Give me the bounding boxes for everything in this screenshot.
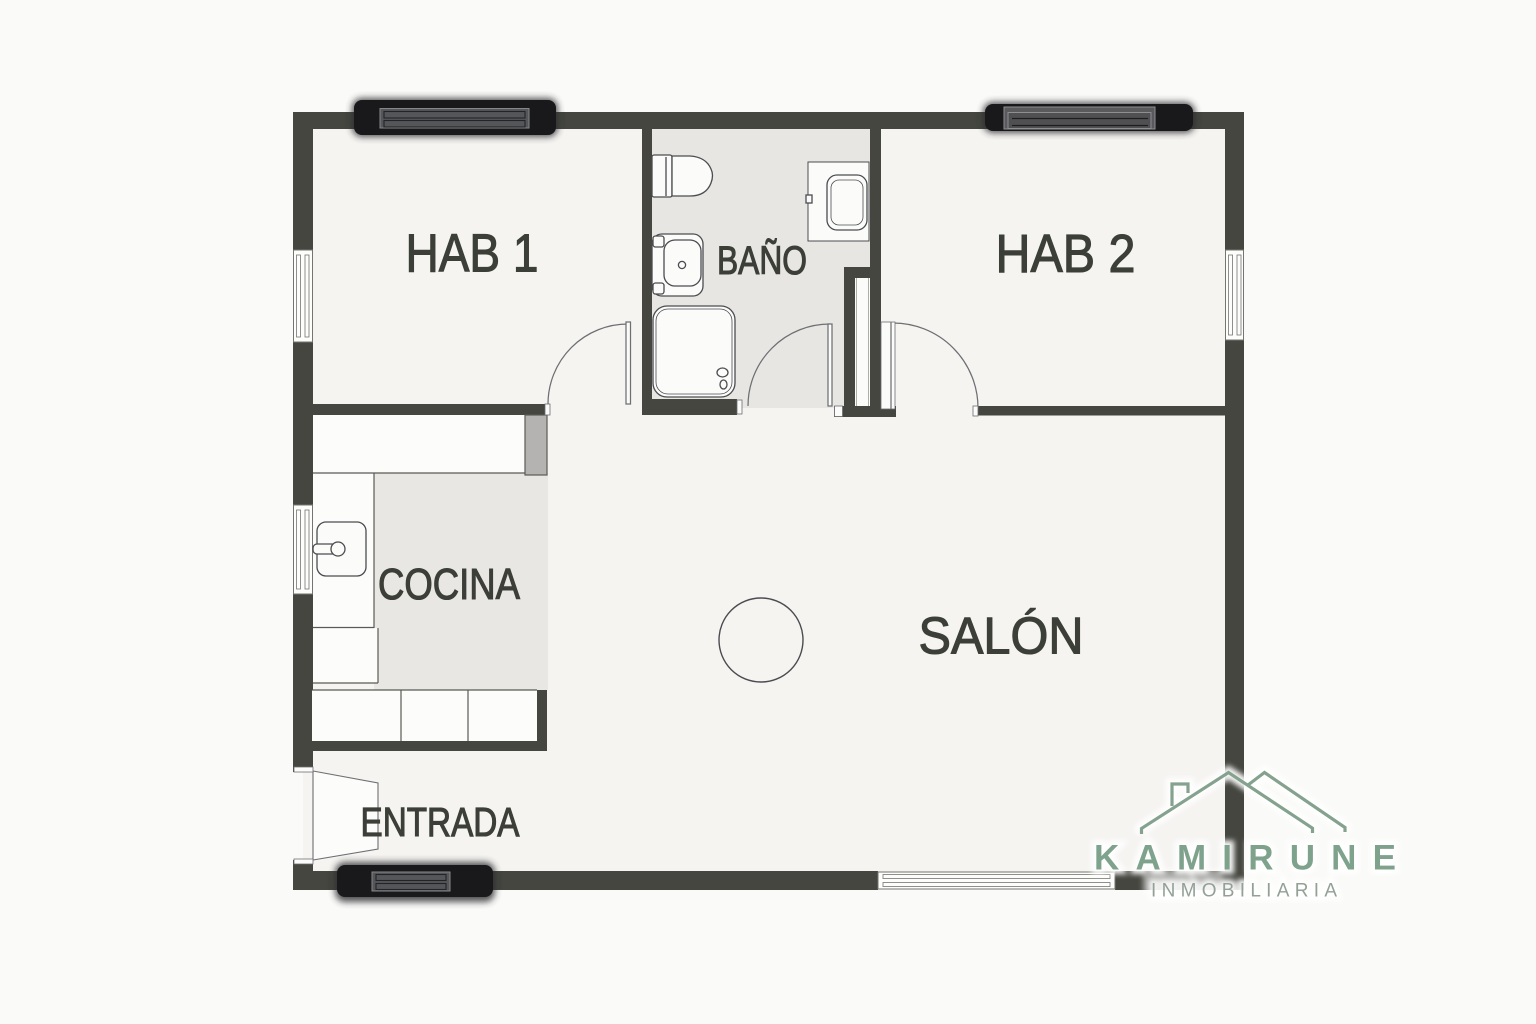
svg-text:ENTRADA: ENTRADA: [361, 799, 521, 845]
svg-text:HAB 1: HAB 1: [406, 224, 539, 284]
svg-text:COCINA: COCINA: [378, 560, 521, 609]
svg-text:BAÑO: BAÑO: [717, 238, 807, 283]
svg-text:HAB 2: HAB 2: [996, 224, 1136, 284]
svg-text:SALÓN: SALÓN: [919, 608, 1084, 666]
